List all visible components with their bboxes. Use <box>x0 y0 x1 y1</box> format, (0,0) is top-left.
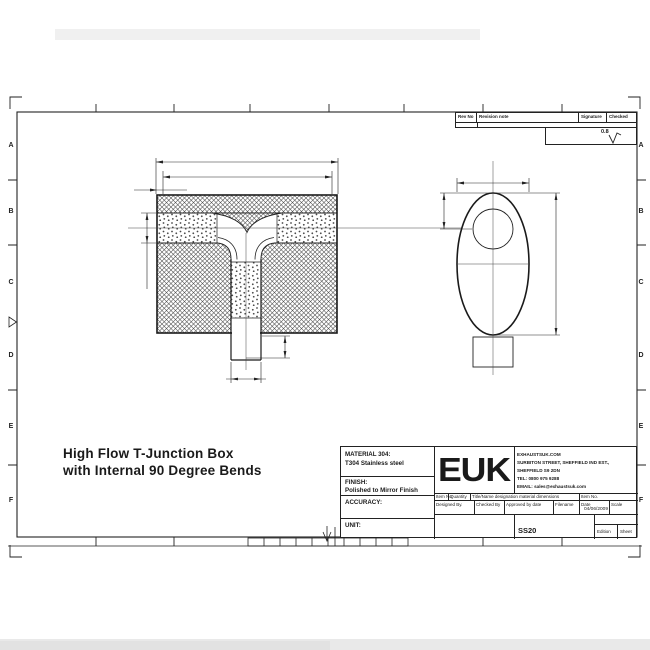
row-label-left-b: B <box>6 208 16 215</box>
title-block: MATERIAL 304: T304 Stainless steel FINIS… <box>340 446 637 538</box>
material-label: MATERIAL 304: <box>345 451 391 459</box>
checked-header: Checked <box>607 113 636 122</box>
front-view <box>128 158 461 383</box>
row-label-left-f: F <box>6 497 16 504</box>
revision-note-header: Revision note <box>477 113 579 122</box>
flow-splitter-wedge <box>212 213 282 233</box>
checked-by-label: Checked By <box>476 502 500 508</box>
row-label-left-e: E <box>6 423 16 430</box>
signature-header: Signature <box>579 113 607 122</box>
row-label-left-d: D <box>6 352 16 359</box>
row-label-right-e: E <box>636 423 646 430</box>
accuracy-label: ACCURACY: <box>345 499 382 507</box>
drawing-number: SS20 <box>518 526 536 535</box>
drawing-title: High Flow T-Junction Box with Internal 9… <box>63 446 262 479</box>
company-website: EXHAUSTSUK.COM <box>517 451 609 459</box>
side-view <box>440 161 560 375</box>
row-label-right-b: B <box>636 208 646 215</box>
scale-label: Scale <box>611 502 622 508</box>
drawing-title-line2: with Internal 90 Degree Bends <box>63 463 262 480</box>
surface-roughness-icon <box>608 132 622 144</box>
sheet-label: Sheet <box>620 529 632 535</box>
finish-label: FINISH: <box>345 479 367 487</box>
approved-by-label: Approved by date <box>506 502 541 508</box>
company-email: EMAIL: sales@exhaustsuk.com <box>517 483 609 491</box>
surface-finish-box: 0.8 <box>545 128 637 145</box>
date-value: 04/06/2009 <box>578 507 608 512</box>
finish-value: Polished to Mirror Finish <box>345 487 418 495</box>
item-no2-header: Item No. <box>581 494 598 500</box>
material-value: T304 Stainless steel <box>345 460 404 468</box>
company-details: EXHAUSTSUK.COM SURBITON STREET, SHEFFIEL… <box>517 451 609 492</box>
row-label-right-c: C <box>636 279 646 286</box>
designed-by-label: Designed By. <box>436 502 462 508</box>
quantity-header: Quantity <box>450 494 467 500</box>
company-logo: EUK <box>432 448 516 492</box>
designation-header: Title/Name designation material dimensio… <box>472 494 559 500</box>
drawing-sheet: A B C D E F A B C D E F High Flow T-Junc… <box>0 0 650 650</box>
technical-drawing-svg <box>0 0 650 650</box>
company-phone: TEL: 0800 975 9288 <box>517 475 609 483</box>
unit-label: UNIT: <box>345 522 361 530</box>
row-label-right-a: A <box>636 142 646 149</box>
company-city: SHEFFIELD S9 2DN <box>517 467 609 475</box>
row-label-right-d: D <box>636 352 646 359</box>
revision-table: Rev No Revision note Signature Checked <box>455 112 637 128</box>
drawing-title-line1: High Flow T-Junction Box <box>63 446 262 463</box>
rev-no-header: Rev No <box>456 113 477 122</box>
edition-label: Edition <box>597 529 611 535</box>
filename-label: Filename <box>555 502 574 508</box>
row-label-left-a: A <box>6 142 16 149</box>
company-street: SURBITON STREET, SHEFFIELD IND EST., <box>517 459 609 467</box>
row-label-left-c: C <box>6 279 16 286</box>
